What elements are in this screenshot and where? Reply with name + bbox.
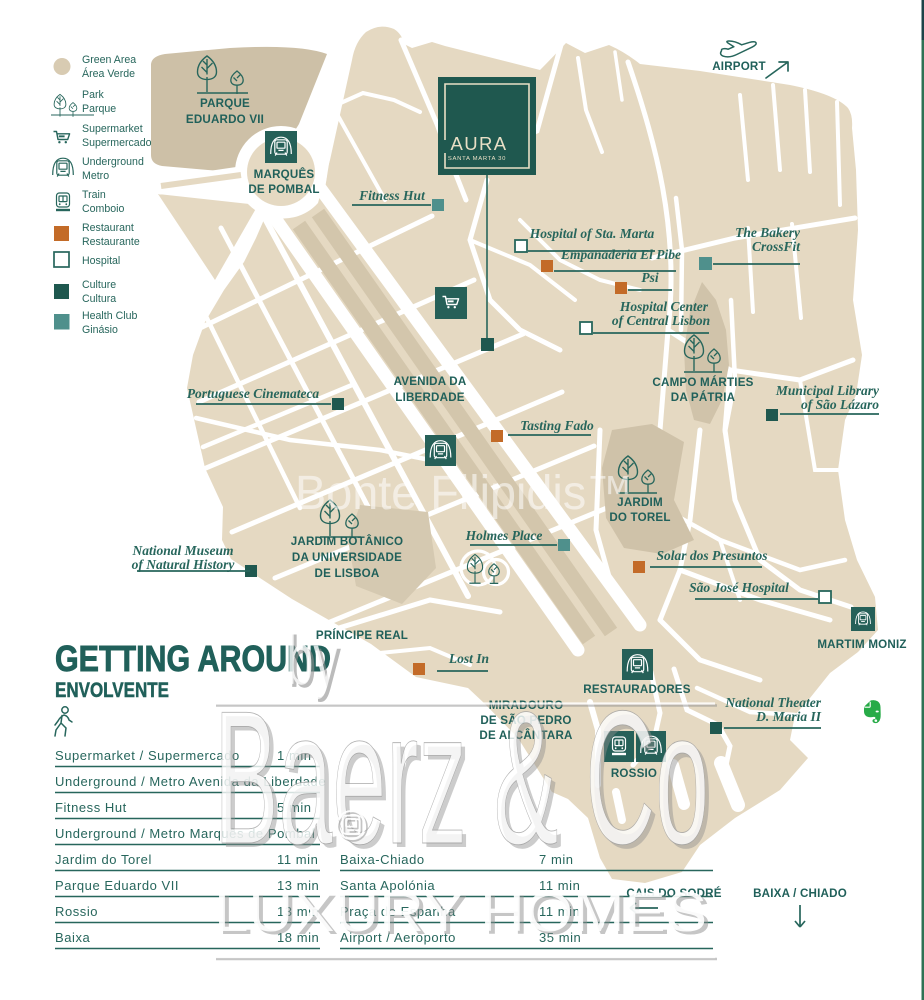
svg-text:Tasting Fado: Tasting Fado bbox=[520, 418, 594, 433]
svg-text:Supermercado: Supermercado bbox=[82, 137, 152, 149]
svg-text:DA UNIVERSIDADE: DA UNIVERSIDADE bbox=[292, 551, 402, 564]
svg-text:Municipal Library: Municipal Library bbox=[775, 383, 880, 398]
svg-text:Underground: Underground bbox=[82, 156, 144, 168]
svg-text:Baerz & Co: Baerz & Co bbox=[214, 672, 709, 884]
svg-text:DA PÁTRIA: DA PÁTRIA bbox=[671, 391, 736, 404]
svg-text:AVENIDA DA: AVENIDA DA bbox=[394, 375, 467, 388]
svg-text:CAMPO MÁRTIES: CAMPO MÁRTIES bbox=[652, 376, 753, 389]
svg-text:Jardim do Torel: Jardim do Torel bbox=[55, 852, 152, 867]
svg-text:DE POMBAL: DE POMBAL bbox=[248, 183, 319, 196]
svg-text:Supermarket: Supermarket bbox=[82, 123, 143, 135]
svg-text:Empanaderia El Pibe: Empanaderia El Pibe bbox=[560, 247, 681, 262]
svg-text:Culture: Culture bbox=[82, 279, 116, 291]
svg-text:National Theater: National Theater bbox=[724, 695, 821, 710]
svg-text:Hospital: Hospital bbox=[82, 255, 120, 267]
svg-text:MARTIM MONIZ: MARTIM MONIZ bbox=[817, 638, 906, 651]
svg-text:AIRPORT: AIRPORT bbox=[712, 60, 766, 73]
svg-text:PARQUE: PARQUE bbox=[200, 97, 250, 110]
svg-text:SANTA MARTA 30: SANTA MARTA 30 bbox=[448, 156, 506, 162]
svg-text:JARDIM BOTÂNICO: JARDIM BOTÂNICO bbox=[291, 535, 404, 548]
svg-text:Psi: Psi bbox=[641, 270, 659, 285]
svg-text:Área Verde: Área Verde bbox=[82, 67, 135, 80]
svg-text:MARQUÊS: MARQUÊS bbox=[254, 168, 315, 181]
svg-text:Rossio: Rossio bbox=[55, 904, 98, 919]
svg-text:Holmes Place: Holmes Place bbox=[465, 528, 543, 543]
svg-text:DE LISBOA: DE LISBOA bbox=[315, 567, 380, 580]
svg-text:EDUARDO VII: EDUARDO VII bbox=[186, 113, 264, 126]
svg-text:The Bakery: The Bakery bbox=[735, 225, 801, 240]
svg-text:Ginásio: Ginásio bbox=[82, 324, 118, 336]
svg-text:of São Lázaro: of São Lázaro bbox=[801, 397, 879, 412]
svg-text:of Central Lisbon: of Central Lisbon bbox=[612, 313, 710, 328]
svg-text:Comboio: Comboio bbox=[82, 203, 125, 215]
svg-text:Restaurante: Restaurante bbox=[82, 236, 140, 248]
svg-text:São José Hospital: São José Hospital bbox=[689, 580, 789, 595]
svg-text:Green Area: Green Area bbox=[82, 54, 136, 66]
svg-text:Lost In: Lost In bbox=[448, 651, 489, 666]
svg-text:Parque: Parque bbox=[82, 103, 116, 115]
svg-text:Fitness Hut: Fitness Hut bbox=[358, 188, 426, 203]
svg-text:National Museum: National Museum bbox=[132, 543, 234, 558]
svg-text:Baixa: Baixa bbox=[55, 930, 90, 945]
svg-text:Train: Train bbox=[82, 189, 106, 201]
svg-text:Health Club: Health Club bbox=[82, 310, 137, 322]
svg-text:Fitness Hut: Fitness Hut bbox=[55, 800, 127, 815]
svg-text:LIBERDADE: LIBERDADE bbox=[395, 391, 464, 404]
svg-text:of Natural History: of Natural History bbox=[132, 557, 236, 572]
svg-text:CrossFit: CrossFit bbox=[752, 239, 801, 254]
svg-text:Portuguese Cinemateca: Portuguese Cinemateca bbox=[187, 386, 320, 401]
svg-text:LUXURY HOMES: LUXURY HOMES bbox=[214, 880, 707, 943]
svg-text:Supermarket / Supermercado: Supermarket / Supermercado bbox=[55, 748, 240, 763]
svg-text:ENVOLVENTE: ENVOLVENTE bbox=[55, 679, 169, 702]
svg-text:Park: Park bbox=[82, 89, 104, 101]
svg-text:Hospital Center: Hospital Center bbox=[619, 299, 709, 314]
svg-text:Metro: Metro bbox=[82, 170, 109, 182]
svg-text:AURA: AURA bbox=[451, 133, 508, 154]
svg-text:BAIXA / CHIADO: BAIXA / CHIADO bbox=[753, 887, 847, 900]
svg-text:D. Maria II: D. Maria II bbox=[755, 709, 822, 724]
svg-text:Cultura: Cultura bbox=[82, 293, 116, 305]
svg-text:Hospital of Sta. Marta: Hospital of Sta. Marta bbox=[529, 226, 655, 241]
svg-text:Solar dos Presuntos: Solar dos Presuntos bbox=[656, 548, 767, 563]
svg-text:Parque Eduardo VII: Parque Eduardo VII bbox=[55, 878, 179, 893]
svg-text:Bonte Filipidis™: Bonte Filipidis™ bbox=[295, 467, 633, 520]
svg-text:Restaurant: Restaurant bbox=[82, 222, 134, 234]
